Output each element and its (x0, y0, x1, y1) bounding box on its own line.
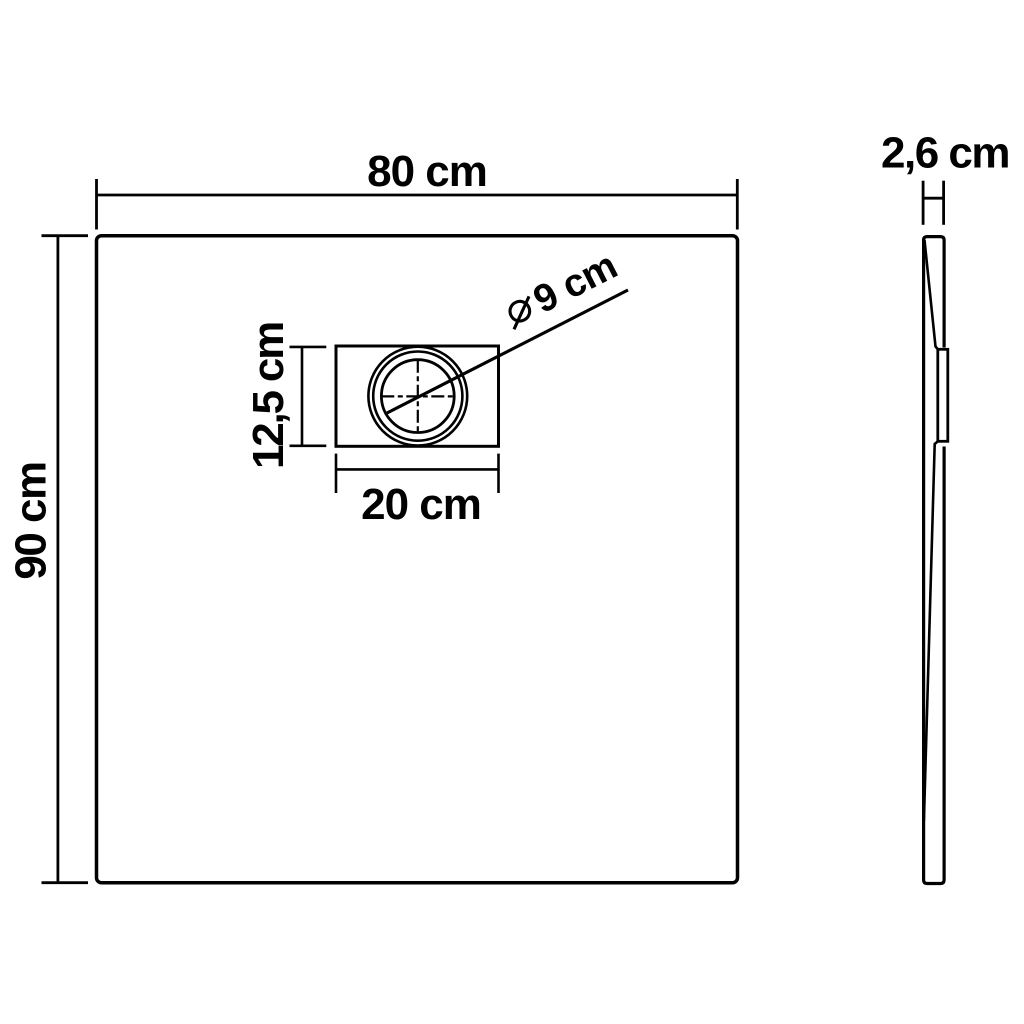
svg-text:80 cm: 80 cm (367, 147, 487, 196)
svg-text:2,6 cm: 2,6 cm (881, 128, 1009, 177)
svg-text:90 cm: 90 cm (7, 462, 56, 579)
svg-text:20 cm: 20 cm (361, 480, 481, 529)
svg-text:12,5 cm: 12,5 cm (244, 323, 293, 469)
